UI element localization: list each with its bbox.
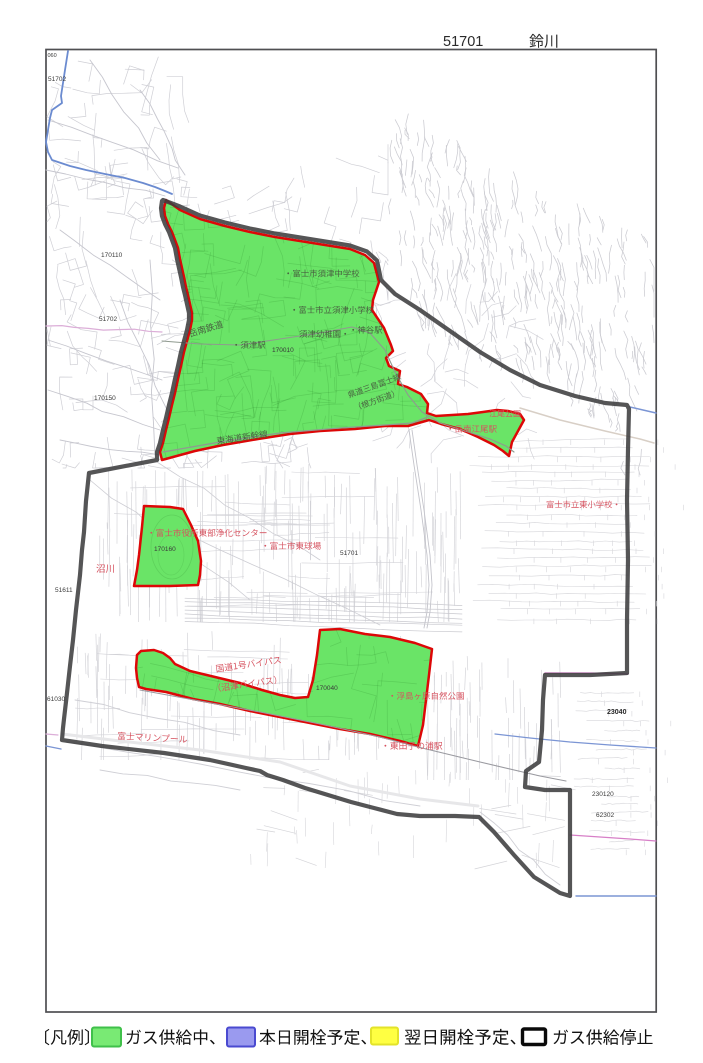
svg-text:060: 060 [48, 53, 57, 59]
svg-text:170150: 170150 [94, 395, 116, 402]
svg-text:51702: 51702 [99, 316, 117, 323]
svg-text:62302: 62302 [596, 812, 614, 819]
svg-text:51701: 51701 [340, 550, 358, 557]
svg-text:170040: 170040 [316, 685, 338, 692]
svg-text:230120: 230120 [592, 791, 614, 798]
svg-text:51611: 51611 [55, 587, 73, 594]
svg-text:170110: 170110 [101, 252, 123, 259]
svg-text:51702: 51702 [48, 76, 66, 83]
svg-text:170160: 170160 [154, 546, 176, 553]
svg-text:51701: 51701 [443, 34, 483, 50]
svg-text:23040: 23040 [607, 709, 627, 716]
svg-text:61030: 61030 [47, 696, 65, 703]
svg-text:170010: 170010 [272, 347, 294, 354]
